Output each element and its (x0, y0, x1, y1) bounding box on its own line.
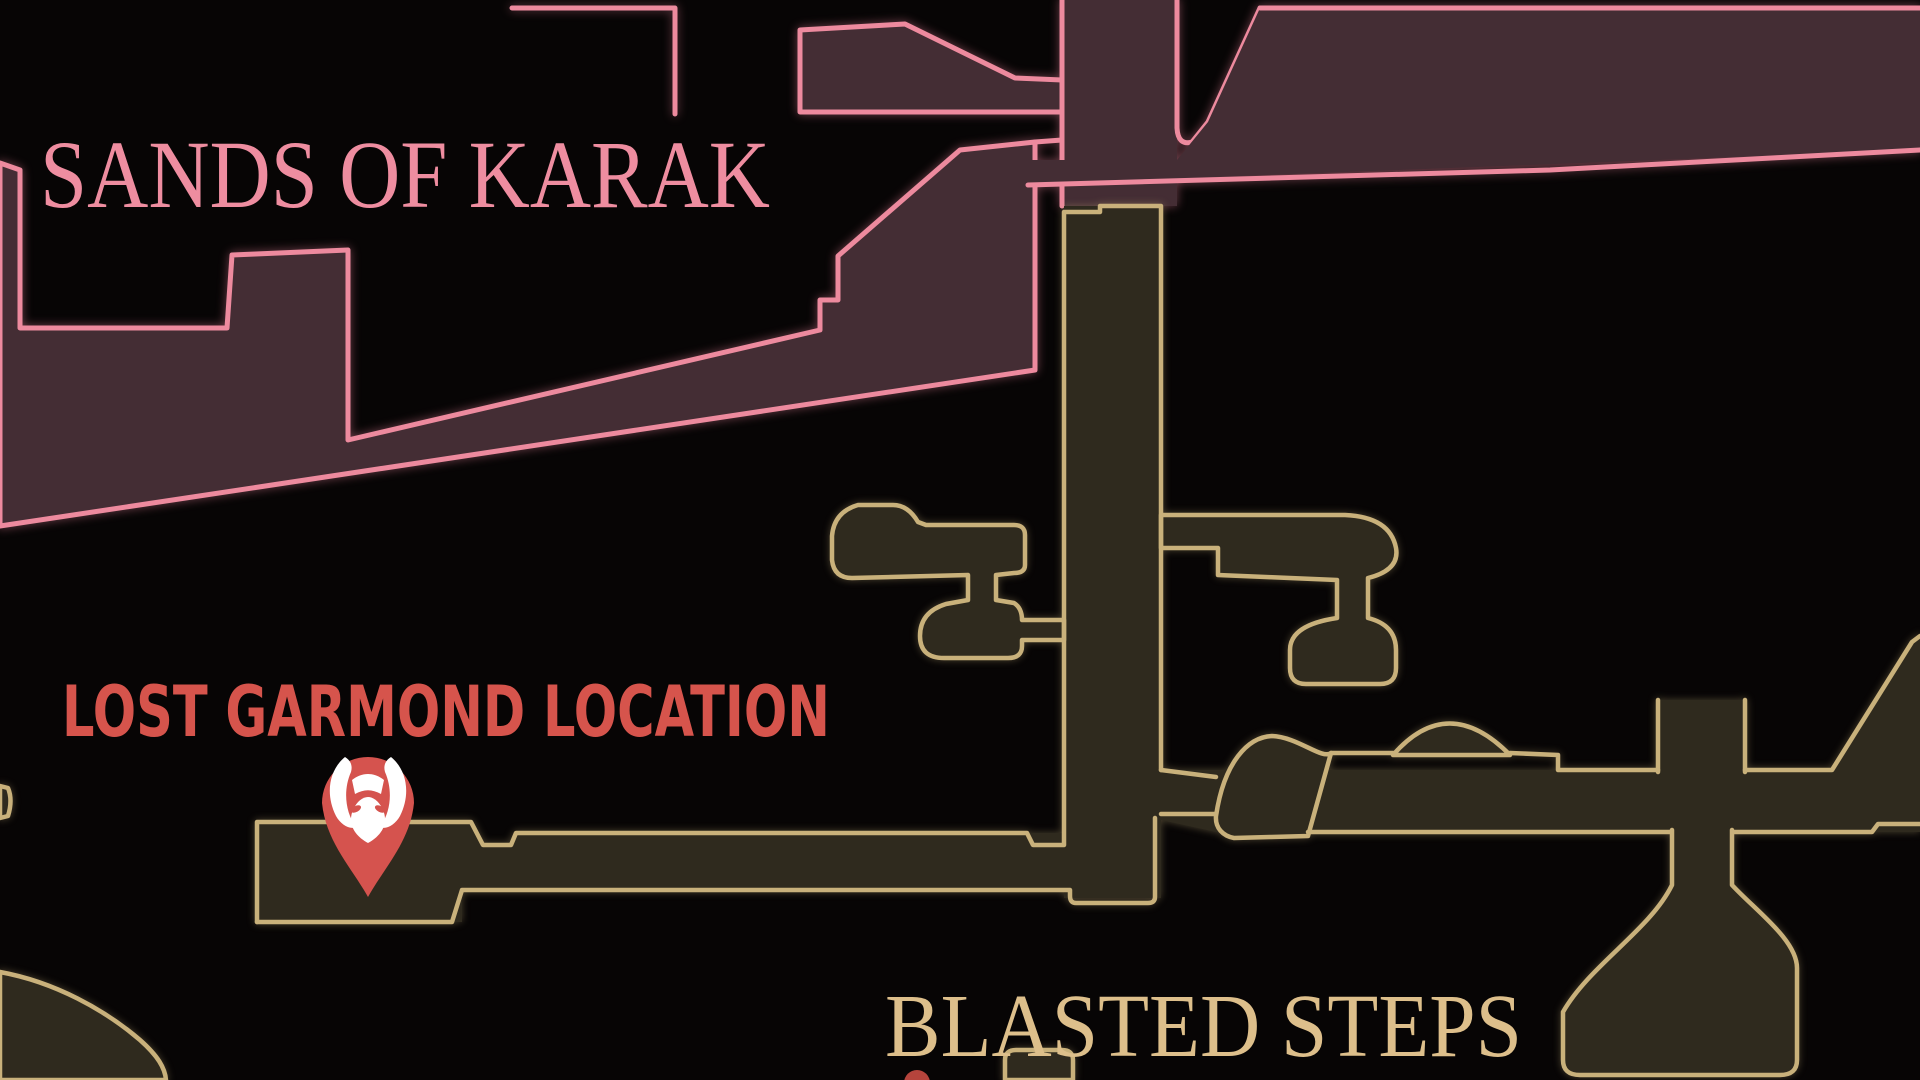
room-outline (0, 786, 11, 818)
room-outline (800, 24, 1062, 112)
room-outline (1161, 515, 1396, 684)
region-sands-of-karak (0, 0, 1920, 526)
room-outline (1658, 700, 1745, 770)
marker-label: LOST GARMOND LOCATION (62, 671, 830, 753)
room-outline (1393, 724, 1510, 756)
room-outline (512, 8, 675, 114)
room-outline (0, 972, 166, 1080)
room-outline (1035, 140, 1062, 142)
room-outline (1563, 825, 1797, 1075)
map-canvas[interactable]: SANDS OF KARAK BLASTED STEPS LOST GARMON… (0, 0, 1920, 1080)
game-map[interactable]: SANDS OF KARAK BLASTED STEPS LOST GARMON… (0, 0, 1920, 1080)
room-outline (832, 505, 1064, 658)
region-label-blasted-steps: BLASTED STEPS (885, 977, 1522, 1076)
room-outline (1064, 206, 1161, 898)
room-outline (1216, 736, 1331, 838)
region-label-sands-of-karak: SANDS OF KARAK (40, 121, 770, 228)
